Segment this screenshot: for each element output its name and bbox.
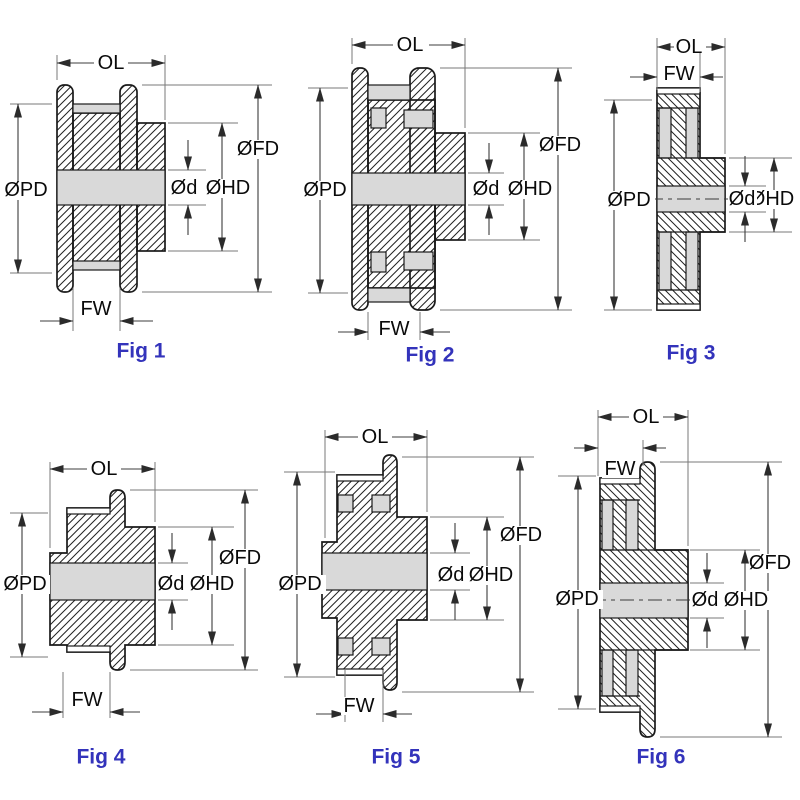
fig3-tooth-band-bottom xyxy=(657,304,700,310)
fig1-label-pd: ØPD xyxy=(4,179,47,201)
fig6-pulley-cross-section xyxy=(592,462,696,737)
fig3-dim-pd: ØPD xyxy=(603,100,655,310)
fig4-label-fd: ØFD xyxy=(219,547,261,569)
fig1-groove-top xyxy=(73,104,120,113)
fig3-recess-bottom-left xyxy=(659,232,671,290)
fig4-dim-fw: FW xyxy=(32,672,140,718)
fig5-insert-top-left xyxy=(338,495,353,512)
fig3-label-fw: FW xyxy=(663,63,694,85)
fig2-insert-top-right xyxy=(404,110,433,128)
fig6-label-pd: ØPD xyxy=(555,588,598,610)
fig5-label-d: Ød xyxy=(438,564,465,586)
fig2-groove-top xyxy=(368,85,410,100)
fig5-label-fw: FW xyxy=(343,695,374,717)
fig6-dim-pd: ØPD xyxy=(551,476,603,709)
figure-3-drawing: OL FW ØPD ØHD Ød Fig 3 xyxy=(585,30,800,370)
fig2-insert-bottom-right xyxy=(404,252,433,270)
fig6-label-ol: OL xyxy=(633,406,660,428)
fig5-insert-top-right xyxy=(372,495,390,512)
technical-drawing-sheet: OL ØPD ØFD ØHD Ød xyxy=(0,0,800,800)
figure-5-drawing: OL ØPD ØFD ØHD Ød xyxy=(270,420,552,775)
fig2-label-hd: ØHD xyxy=(508,178,552,200)
fig2-insert-top-left xyxy=(371,108,386,128)
figure-1-caption: Fig 1 xyxy=(116,340,165,363)
fig5-label-ol: OL xyxy=(362,426,389,448)
fig6-label-hd: ØHD xyxy=(724,589,768,611)
fig6-label-d: Ød xyxy=(692,589,719,611)
fig2-label-fd: ØFD xyxy=(539,134,581,156)
fig1-label-fw: FW xyxy=(80,298,111,320)
fig4-dim-pd: ØPD xyxy=(0,513,50,657)
fig6-recess-top-left xyxy=(602,500,613,550)
fig1-pulley-cross-section xyxy=(57,85,165,292)
fig2-label-d: Ød xyxy=(473,178,500,200)
fig4-label-hd: ØHD xyxy=(190,573,234,595)
figure-4-caption: Fig 4 xyxy=(76,746,125,769)
fig5-pulley-cross-section xyxy=(322,455,427,690)
fig5-bore xyxy=(322,553,427,590)
fig5-label-hd: ØHD xyxy=(469,564,513,586)
fig4-label-d: Ød xyxy=(158,573,185,595)
fig6-label-fd: ØFD xyxy=(749,552,791,574)
figure-6-drawing: OL FW ØPD ØFD ØHD xyxy=(548,395,800,775)
figure-2-drawing: OL ØPD ØFD ØHD Ød xyxy=(290,30,585,370)
fig5-insert-bottom-left xyxy=(338,638,353,655)
figure-5-caption: Fig 5 xyxy=(371,746,420,769)
fig2-label-ol: OL xyxy=(397,34,424,56)
fig6-tooth-band-bottom xyxy=(600,706,640,712)
fig2-dim-fw: FW xyxy=(338,312,450,340)
fig2-dim-pd: ØPD xyxy=(299,88,351,293)
fig4-dim-d: Ød xyxy=(157,533,188,630)
fig6-dim-d: Ød xyxy=(690,553,724,648)
fig4-tooth-band-top xyxy=(67,508,110,514)
fig1-groove-bottom xyxy=(73,261,120,270)
fig2-insert-bottom-left xyxy=(371,252,386,272)
fig3-pulley-cross-section xyxy=(649,88,733,310)
figure-3-caption: Fig 3 xyxy=(666,342,715,365)
fig1-label-d: Ød xyxy=(171,177,198,199)
fig1-label-hd: ØHD xyxy=(206,177,250,199)
fig4-tooth-band-bottom xyxy=(67,646,110,652)
fig4-bore xyxy=(50,563,155,600)
fig4-label-fw: FW xyxy=(71,689,102,711)
fig4-label-pd: ØPD xyxy=(3,573,46,595)
fig1-dim-pd: ØPD xyxy=(2,104,52,273)
fig2-bore xyxy=(352,173,465,205)
fig5-label-pd: ØPD xyxy=(278,573,321,595)
fig1-dim-d: Ød xyxy=(168,140,206,235)
figure-2-caption: Fig 2 xyxy=(405,344,454,367)
fig6-label-fw: FW xyxy=(604,458,635,480)
fig3-tooth-band-top xyxy=(657,88,700,94)
fig5-dim-d: Ød xyxy=(430,523,470,620)
fig2-label-pd: ØPD xyxy=(303,179,346,201)
fig6-recess-bottom-right xyxy=(626,650,638,696)
fig2-label-fw: FW xyxy=(378,318,409,340)
fig6-recess-top-right xyxy=(626,500,638,550)
fig3-label-ol: OL xyxy=(676,36,703,58)
fig2-pulley-cross-section xyxy=(352,68,465,310)
fig1-bore xyxy=(57,170,165,205)
fig4-label-ol: OL xyxy=(91,458,118,480)
fig5-insert-bottom-right xyxy=(372,638,390,655)
fig1-dim-fw: FW xyxy=(40,288,153,331)
fig6-recess-bottom-left xyxy=(602,650,613,696)
fig3-label-pd: ØPD xyxy=(607,189,650,211)
fig1-label-fd: ØFD xyxy=(237,138,279,160)
fig2-groove-bottom xyxy=(368,288,410,302)
fig3-recess-bottom-right xyxy=(686,232,698,290)
fig3-dim-fw: FW xyxy=(630,53,723,92)
fig3-recess-top-right xyxy=(686,108,698,158)
fig4-pulley-cross-section xyxy=(50,490,155,670)
fig3-recess-top-left xyxy=(659,108,671,158)
fig3-label-d: Ød xyxy=(729,188,756,210)
fig5-tooth-band-bottom xyxy=(337,669,383,675)
fig5-tooth-band-top xyxy=(337,475,383,481)
figure-4-drawing: OL ØPD ØFD ØHD Ød xyxy=(0,420,270,775)
fig5-label-fd: ØFD xyxy=(500,524,542,546)
figure-6-caption: Fig 6 xyxy=(636,746,685,769)
figure-1-drawing: OL ØPD ØFD ØHD Ød xyxy=(0,35,290,370)
fig1-label-ol: OL xyxy=(98,52,125,74)
fig2-dim-d: Ød xyxy=(468,143,504,235)
